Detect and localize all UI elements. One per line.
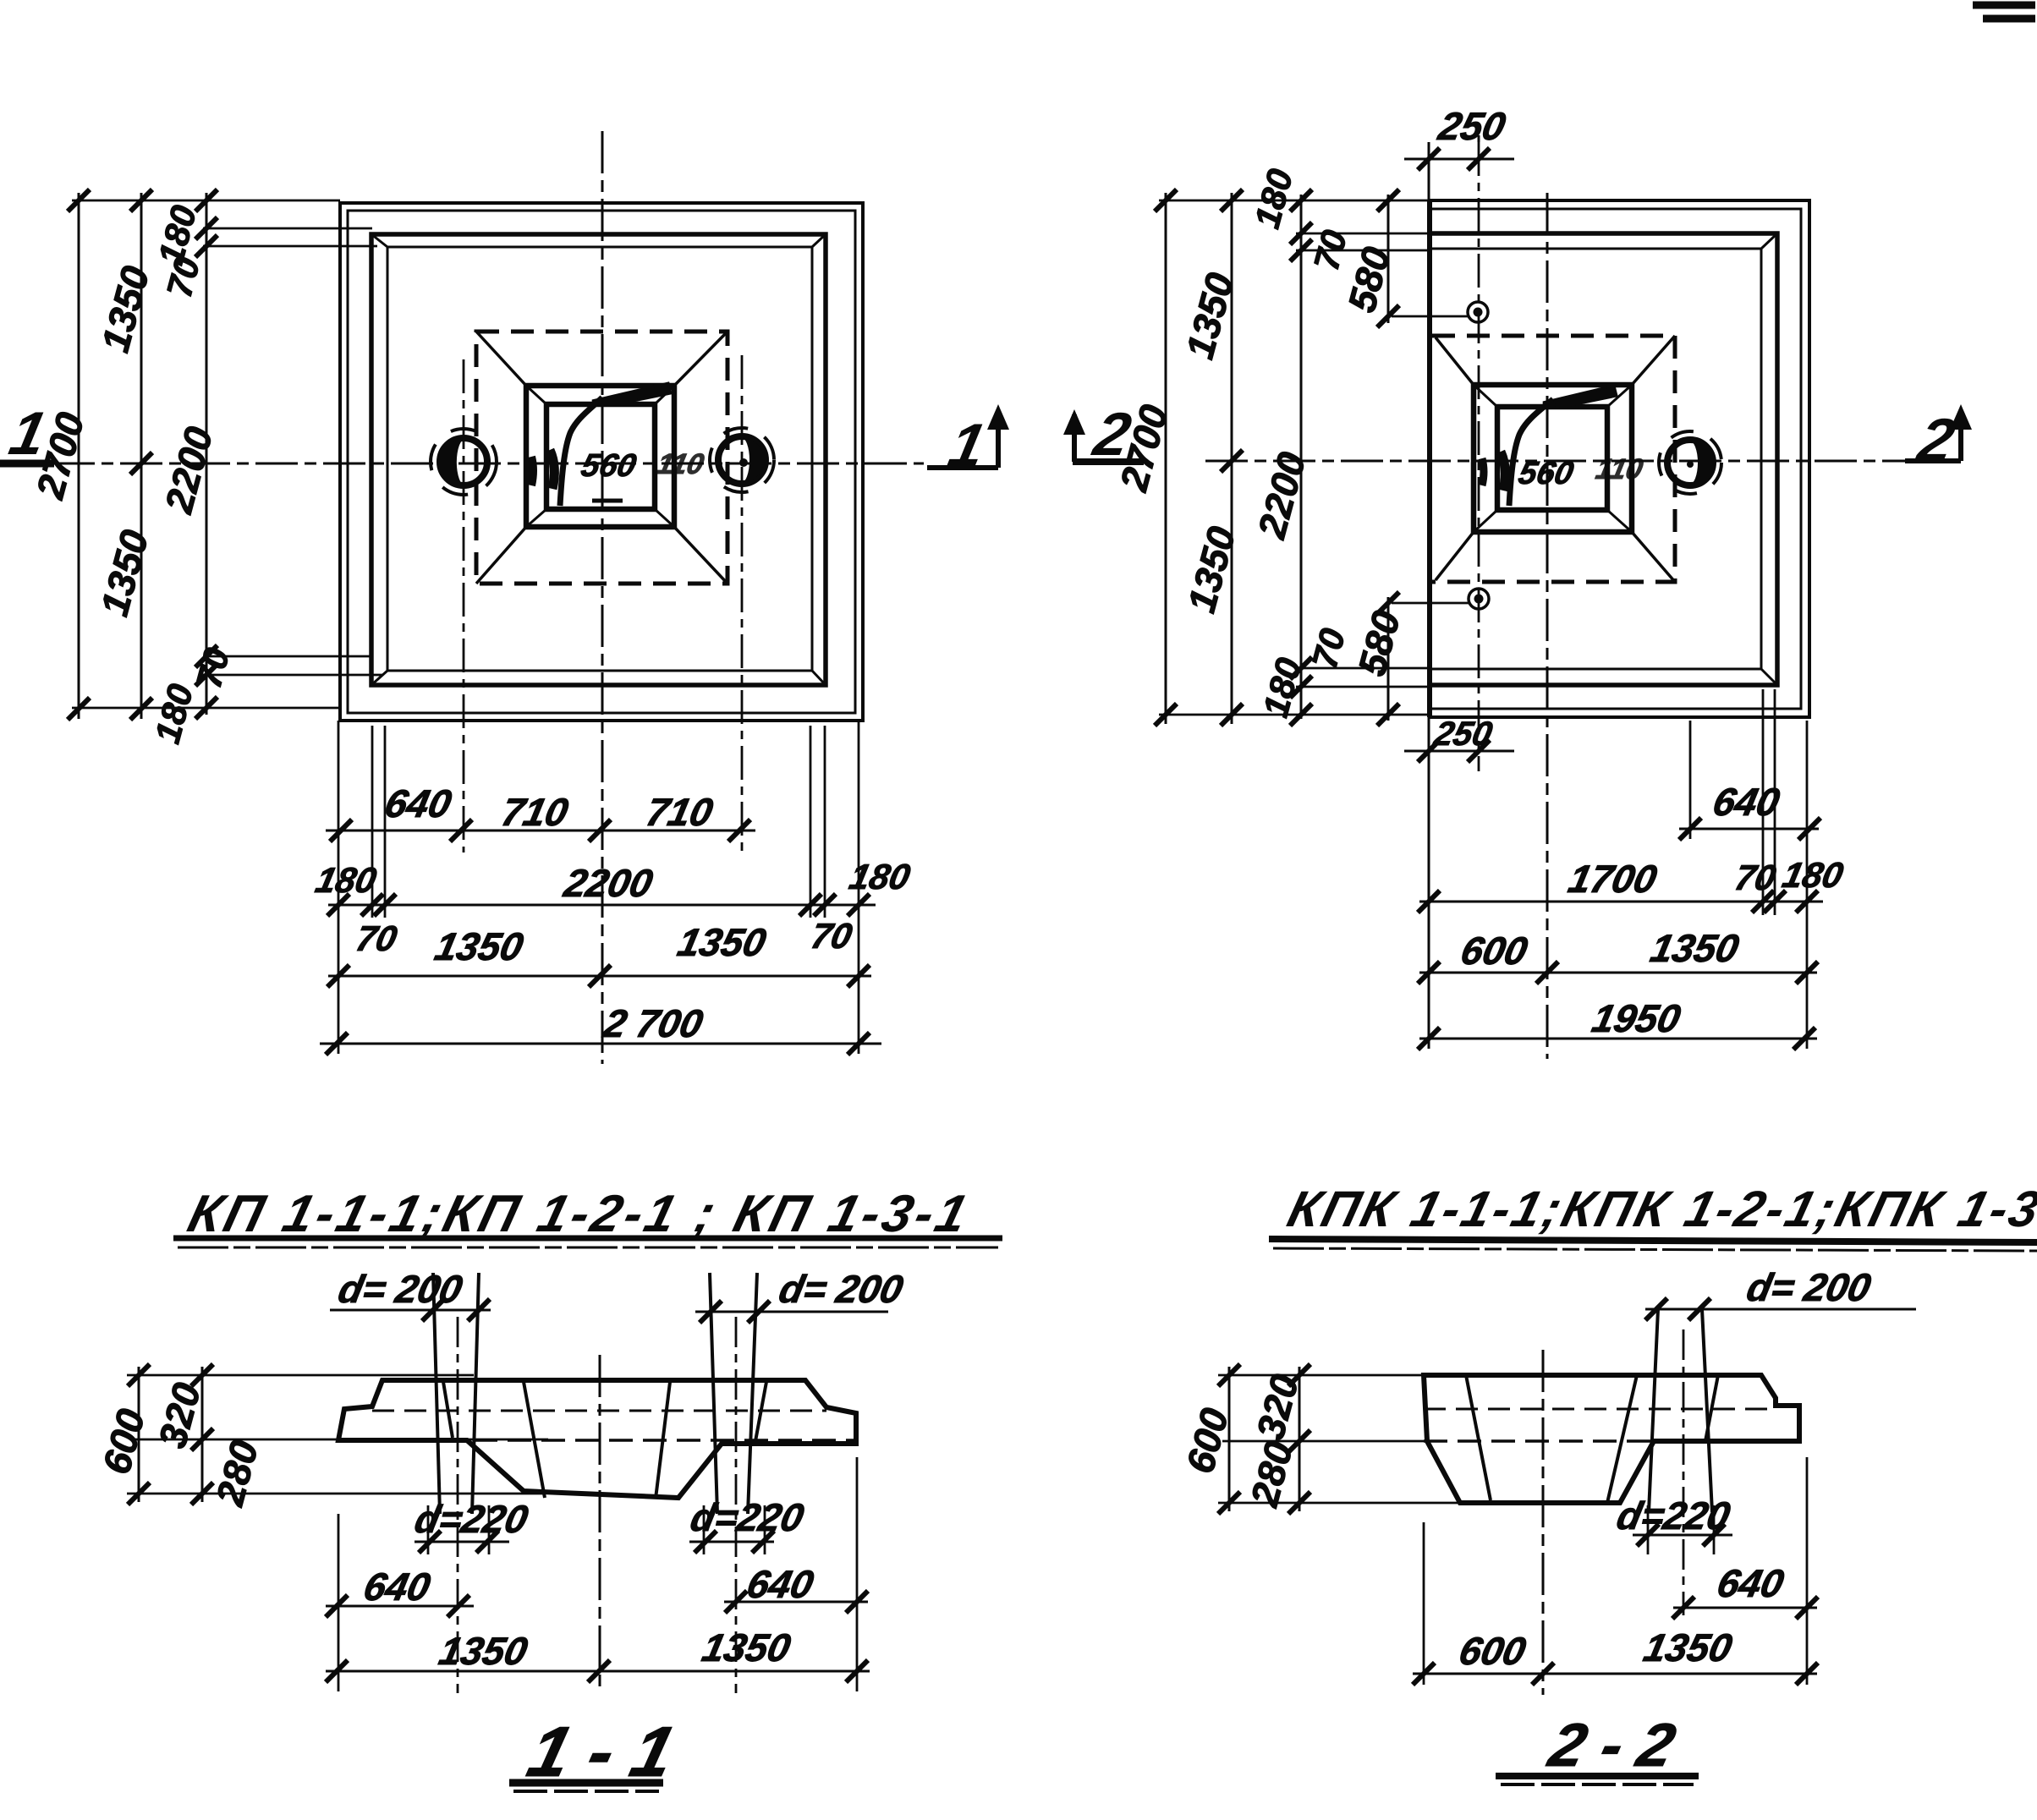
svg-text:710: 710 <box>498 790 573 833</box>
svg-text:710: 710 <box>643 790 717 833</box>
svg-text:2200: 2200 <box>560 861 656 904</box>
svg-text:180: 180 <box>846 857 914 896</box>
svg-text:1350: 1350 <box>699 1625 794 1669</box>
svg-text:600: 600 <box>1458 929 1532 972</box>
svg-text:250: 250 <box>1435 104 1510 147</box>
svg-text:2 700: 2 700 <box>599 1001 706 1044</box>
svg-text:560: 560 <box>578 447 639 484</box>
svg-text:250: 250 <box>1430 714 1496 752</box>
svg-text:110: 110 <box>1593 453 1645 485</box>
svg-text:180: 180 <box>312 860 380 899</box>
svg-text:640: 640 <box>382 781 456 825</box>
svg-text:1350: 1350 <box>1647 926 1743 969</box>
svg-text:1350: 1350 <box>431 924 527 968</box>
svg-text:d=220: d=220 <box>1613 1494 1734 1537</box>
svg-text:d= 200: d= 200 <box>776 1267 908 1310</box>
svg-text:640: 640 <box>360 1565 435 1608</box>
svg-text:d=220: d=220 <box>411 1497 532 1540</box>
svg-text:640: 640 <box>1710 780 1784 823</box>
svg-text:d= 200: d= 200 <box>335 1267 467 1310</box>
svg-text:1700: 1700 <box>1565 857 1661 900</box>
svg-text:640: 640 <box>744 1562 818 1605</box>
svg-text:1950: 1950 <box>1589 996 1684 1039</box>
svg-text:180: 180 <box>1779 855 1847 894</box>
svg-text:1350: 1350 <box>436 1629 531 1672</box>
svg-text:КП 1-1-1;КП 1-2-1 ; КП 1-3-1: КП 1-1-1;КП 1-2-1 ; КП 1-3-1 <box>183 1185 977 1243</box>
svg-text:600: 600 <box>1456 1629 1530 1672</box>
svg-text:2 - 2: 2 - 2 <box>1541 1712 1682 1779</box>
svg-text:1350: 1350 <box>674 920 770 963</box>
svg-text:1350: 1350 <box>1640 1625 1736 1669</box>
svg-text:640: 640 <box>1714 1561 1788 1604</box>
svg-text:d= 200: d= 200 <box>1743 1265 1875 1308</box>
svg-text:d=220: d=220 <box>687 1495 808 1538</box>
svg-text:КПК 1-1-1;КПК 1-2-1;КПК 1-3-1: КПК 1-1-1;КПК 1-2-1;КПК 1-3-1 <box>1282 1181 2037 1237</box>
